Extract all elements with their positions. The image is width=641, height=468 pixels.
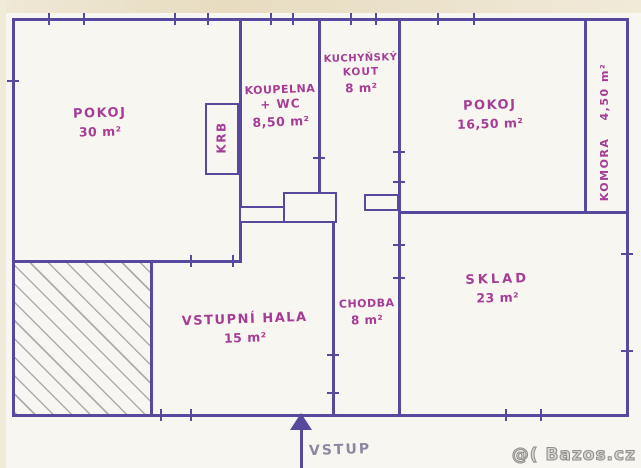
- room-area: 8 m²: [322, 80, 400, 97]
- room-name: SKLAD: [440, 271, 555, 290]
- door-tick: [393, 277, 405, 279]
- wall-pokoj30-right: [239, 18, 242, 263]
- room-label-vstupni-hala: VSTUPNÍ HALA 15 m²: [169, 309, 320, 348]
- door-tick: [393, 181, 405, 183]
- room-name: POKOJ: [430, 96, 550, 115]
- watermark-bazos: @( Bazos.cz: [512, 445, 636, 465]
- wall-koupelna-bottom-step: [283, 192, 337, 223]
- wall-tick: [292, 13, 294, 25]
- room-label-krb: KRB: [215, 98, 230, 178]
- room-area: 23 m²: [440, 289, 555, 308]
- room-name-2: KOUT: [322, 64, 400, 79]
- room-label-chodba: CHODBA 8 m²: [329, 296, 406, 329]
- wall-tick: [540, 409, 542, 421]
- wall-sklad-top: [398, 211, 629, 214]
- room-area: 15 m²: [170, 328, 320, 349]
- wall-komora-left: [584, 18, 587, 214]
- paper-edge: [0, 0, 6, 468]
- wall-tick: [207, 13, 209, 25]
- wall-hatch-right: [150, 260, 153, 416]
- entry-label: VSTUP: [309, 441, 372, 459]
- door-tick: [393, 244, 405, 246]
- room-name: POKOJ: [50, 105, 150, 124]
- entry-arrow-icon: [290, 413, 312, 430]
- wall-tick: [505, 409, 507, 421]
- room-name: KRB: [215, 98, 230, 178]
- wall-outer-right: [626, 18, 629, 417]
- room-area: 8,50 m²: [238, 112, 323, 131]
- room-area: 4,50 m²: [598, 63, 611, 121]
- room-label-pokoj-16: POKOJ 16,50 m²: [430, 96, 551, 133]
- wall-tick: [174, 13, 176, 25]
- room-label-kuchynsky-kout: KUCHYŇSKÝ KOUT 8 m²: [321, 52, 400, 97]
- entry-arrow-shaft: [300, 430, 303, 468]
- room-name-2: + WC: [238, 95, 323, 113]
- room-label-komora: KOMORA 4,50 m²: [593, 57, 613, 207]
- door-tick: [327, 354, 339, 356]
- wall-tick: [621, 350, 633, 352]
- room-area: 16,50 m²: [430, 115, 550, 134]
- wall-tick: [190, 409, 192, 421]
- wall-tick: [473, 13, 475, 25]
- wall-tick: [160, 409, 162, 421]
- floor-plan-scan: POKOJ 30 m² KRB KOUPELNA + WC 8,50 m² KU…: [0, 0, 641, 468]
- room-label-pokoj-30: POKOJ 30 m²: [50, 105, 151, 141]
- room-name: CHODBA: [329, 296, 405, 312]
- door-tick: [393, 151, 405, 153]
- wall-tick: [437, 13, 439, 25]
- wall-tick: [350, 13, 352, 25]
- room-area: 8 m²: [329, 312, 405, 329]
- wall-tick: [621, 253, 633, 255]
- shaft-box: [364, 194, 399, 211]
- room-label-koupelna: KOUPELNA + WC 8,50 m²: [237, 82, 324, 131]
- wall-tick: [375, 13, 377, 25]
- door-tick: [190, 255, 192, 267]
- door-tick: [313, 157, 325, 159]
- room-area: 30 m²: [50, 123, 150, 141]
- room-name: KOMORA: [598, 138, 611, 202]
- door-tick: [327, 392, 339, 394]
- wall-tick: [270, 13, 272, 25]
- room-label-sklad: SKLAD 23 m²: [440, 271, 556, 308]
- wall-tick: [7, 80, 19, 82]
- room-name: KUCHYŇSKÝ: [321, 52, 399, 67]
- wall-tick: [48, 13, 50, 25]
- room-name: KOUPELNA: [237, 82, 322, 99]
- wall-tick: [83, 13, 85, 25]
- paper-edge: [0, 0, 641, 13]
- wall-outer-bottom: [12, 414, 629, 417]
- hatched-area: [15, 263, 150, 414]
- door-tick: [232, 255, 234, 267]
